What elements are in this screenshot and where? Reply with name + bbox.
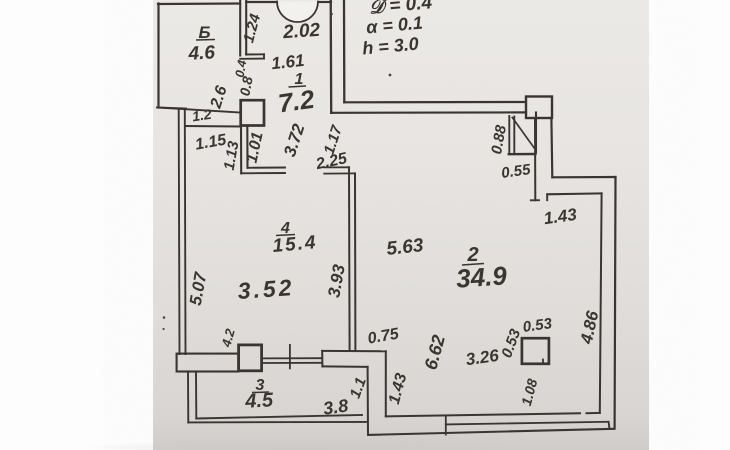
svg-text:4.6: 4.6 [187, 42, 216, 64]
svg-text:15.4: 15.4 [272, 232, 319, 257]
svg-text:4.5: 4.5 [244, 389, 275, 413]
svg-text:1.61: 1.61 [270, 51, 305, 73]
svg-text:2.02: 2.02 [281, 20, 321, 44]
svg-text:3.8: 3.8 [322, 395, 350, 418]
svg-text:0.8: 0.8 [237, 75, 256, 97]
svg-text:34.9: 34.9 [455, 260, 508, 293]
svg-text:1.2: 1.2 [191, 106, 213, 125]
svg-text:5.63: 5.63 [385, 235, 424, 260]
svg-text:3.52: 3.52 [237, 274, 295, 304]
svg-text:7.2: 7.2 [276, 84, 317, 119]
